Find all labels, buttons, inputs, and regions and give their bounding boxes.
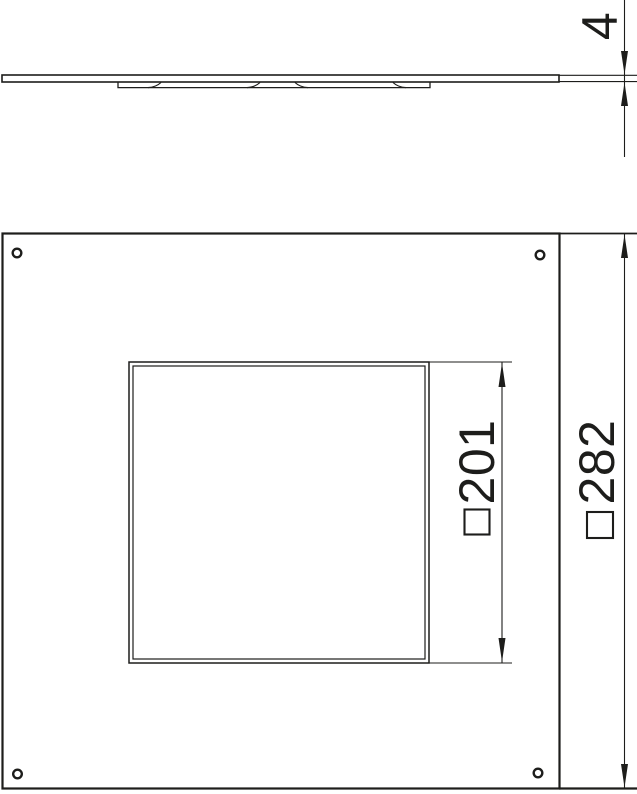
dimension-arrow-up-icon (621, 235, 628, 259)
square-dimension-symbol-icon (587, 512, 613, 538)
dimension-arrow-up-icon (621, 82, 628, 106)
side-profile-view: 4 (2, 0, 637, 157)
mounting-hole-top-left (13, 249, 22, 258)
square-dimension-symbol-icon (465, 510, 490, 535)
dimension-arrow-up-icon (499, 363, 506, 387)
underside-lip-outline (118, 82, 430, 88)
lip-tab-arc (393, 83, 406, 88)
dimension-arrow-down-icon (621, 764, 628, 788)
plate-profile-outline (2, 75, 559, 82)
drawing-canvas: 4 201 (0, 0, 637, 794)
overall-dimension-label: 282 (569, 420, 625, 505)
plan-view: 201 282 (3, 234, 637, 789)
cutout-dimension-201: 201 (429, 362, 512, 663)
lip-tab-arc (295, 83, 308, 88)
technical-drawing-page: 4 201 (0, 0, 637, 794)
thickness-dimension-label: 4 (572, 12, 628, 40)
lip-tab-arc (148, 83, 161, 88)
dimension-arrow-down-icon (621, 51, 628, 74)
cutout-square-inner (133, 366, 425, 659)
cutout-square-outer (129, 362, 429, 663)
lip-tab-arc (247, 83, 260, 88)
mounting-hole-bottom-left (13, 770, 22, 779)
overall-dimension-282: 282 (559, 234, 637, 789)
mounting-hole-top-right (536, 251, 545, 260)
mounting-hole-bottom-right (534, 769, 543, 778)
cutout-dimension-label: 201 (449, 420, 505, 505)
dimension-arrow-down-icon (499, 638, 506, 662)
plate-face-outline (3, 234, 560, 789)
